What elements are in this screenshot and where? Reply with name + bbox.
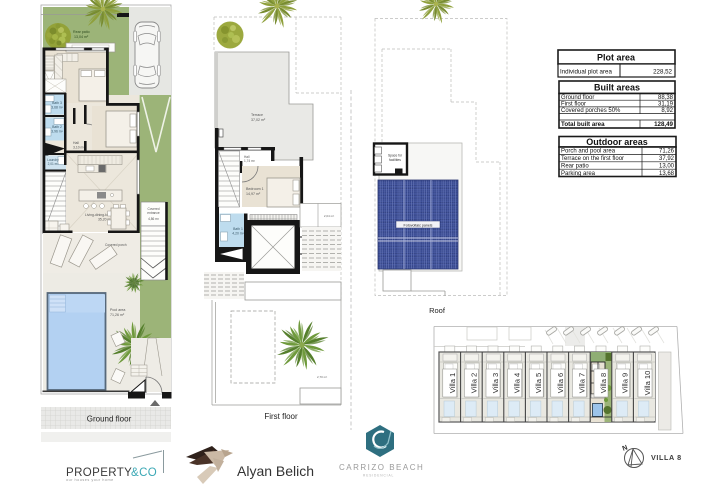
svg-text:Ground floor: Ground floor [561, 95, 594, 101]
svg-text:3,10 m²: 3,10 m² [73, 146, 85, 150]
svg-text:Individual plot area: Individual plot area [560, 69, 613, 76]
svg-text:Roof: Roof [429, 306, 446, 315]
svg-text:Outdoor areas: Outdoor areas [586, 137, 648, 147]
svg-text:2,01 m²: 2,01 m² [48, 162, 59, 166]
svg-text:Terrace: Terrace [251, 113, 263, 117]
svg-text:Covered porches 50%: Covered porches 50% [561, 108, 621, 114]
svg-text:Parking area: Parking area [561, 171, 596, 177]
svg-text:Plot area: Plot area [597, 53, 636, 63]
svg-text:VILLA 8: VILLA 8 [651, 453, 682, 462]
svg-text:71,26 m²: 71,26 m² [110, 313, 125, 317]
svg-text:Built areas: Built areas [594, 83, 640, 93]
svg-text:RESIDENCIAL: RESIDENCIAL [363, 474, 394, 478]
svg-text:37,02 m²: 37,02 m² [251, 118, 266, 122]
svg-text:8,92: 8,92 [661, 108, 673, 114]
svg-text:31,19: 31,19 [658, 102, 674, 108]
svg-text:CARRIZO BEACH: CARRIZO BEACH [339, 463, 424, 472]
svg-text:Hall: Hall [73, 141, 79, 145]
svg-text:3,68 m²: 3,68 m² [51, 106, 63, 110]
svg-text:Ground floor: Ground floor [87, 415, 132, 424]
svg-text:Villa 6: Villa 6 [556, 373, 565, 394]
svg-text:2,04 m²: 2,04 m² [324, 214, 334, 218]
svg-text:Rear patio: Rear patio [561, 163, 589, 169]
svg-text:13,68: 13,68 [659, 171, 675, 177]
svg-text:3,96 m²: 3,96 m² [51, 130, 63, 134]
svg-text:Rear patio: Rear patio [73, 30, 90, 34]
svg-text:13,00: 13,00 [659, 163, 675, 169]
svg-text:Space for: Space for [388, 154, 403, 158]
svg-text:Villa 7: Villa 7 [577, 373, 586, 394]
svg-text:4,86 m²: 4,86 m² [148, 217, 159, 221]
svg-text:Villa 2: Villa 2 [469, 373, 478, 394]
svg-text:88,38: 88,38 [658, 95, 674, 101]
svg-text:Bath 1: Bath 1 [233, 227, 243, 231]
svg-text:13,04 m²: 13,04 m² [74, 35, 89, 39]
svg-text:Villa 9: Villa 9 [621, 373, 630, 394]
svg-text:Fotovoltaic panels: Fotovoltaic panels [404, 223, 433, 227]
svg-text:Bedroom 1: Bedroom 1 [246, 187, 264, 191]
svg-text:&CO: &CO [131, 467, 157, 479]
svg-text:Villa 10: Villa 10 [643, 371, 652, 396]
svg-text:facilities: facilities [389, 158, 401, 162]
svg-text:128,49: 128,49 [654, 121, 673, 128]
svg-text:Pool area: Pool area [110, 308, 125, 312]
svg-text:Villa 3: Villa 3 [491, 373, 500, 394]
svg-text:37,92: 37,92 [659, 156, 675, 162]
svg-text:our houses your home: our houses your home [66, 478, 114, 482]
svg-text:Villa 4: Villa 4 [513, 373, 522, 394]
svg-text:Villa 1: Villa 1 [448, 373, 457, 394]
svg-text:Porch and pool area: Porch and pool area [561, 149, 616, 155]
svg-text:14,97 m²: 14,97 m² [246, 192, 261, 196]
svg-text:Alyan Belich: Alyan Belich [237, 463, 314, 479]
svg-text:entrance: entrance [147, 211, 160, 215]
svg-text:71,26: 71,26 [659, 149, 675, 155]
svg-text:4,20 m²: 4,20 m² [232, 232, 244, 236]
svg-text:Villa 8: Villa 8 [599, 373, 608, 394]
svg-text:First floor: First floor [561, 102, 586, 108]
svg-text:Bath 3: Bath 3 [52, 101, 62, 105]
svg-text:Bath 2: Bath 2 [52, 125, 62, 129]
svg-text:Terrace on the first floor: Terrace on the first floor [561, 156, 624, 162]
svg-text:First floor: First floor [264, 412, 298, 421]
svg-text:228,52: 228,52 [653, 69, 672, 76]
svg-text:Covered porch: Covered porch [105, 243, 127, 247]
svg-text:1,74 m²: 1,74 m² [244, 159, 255, 163]
svg-text:Total built area: Total built area [561, 121, 605, 128]
svg-text:2,70 m²: 2,70 m² [317, 375, 327, 379]
svg-text:Villa 5: Villa 5 [534, 373, 543, 394]
